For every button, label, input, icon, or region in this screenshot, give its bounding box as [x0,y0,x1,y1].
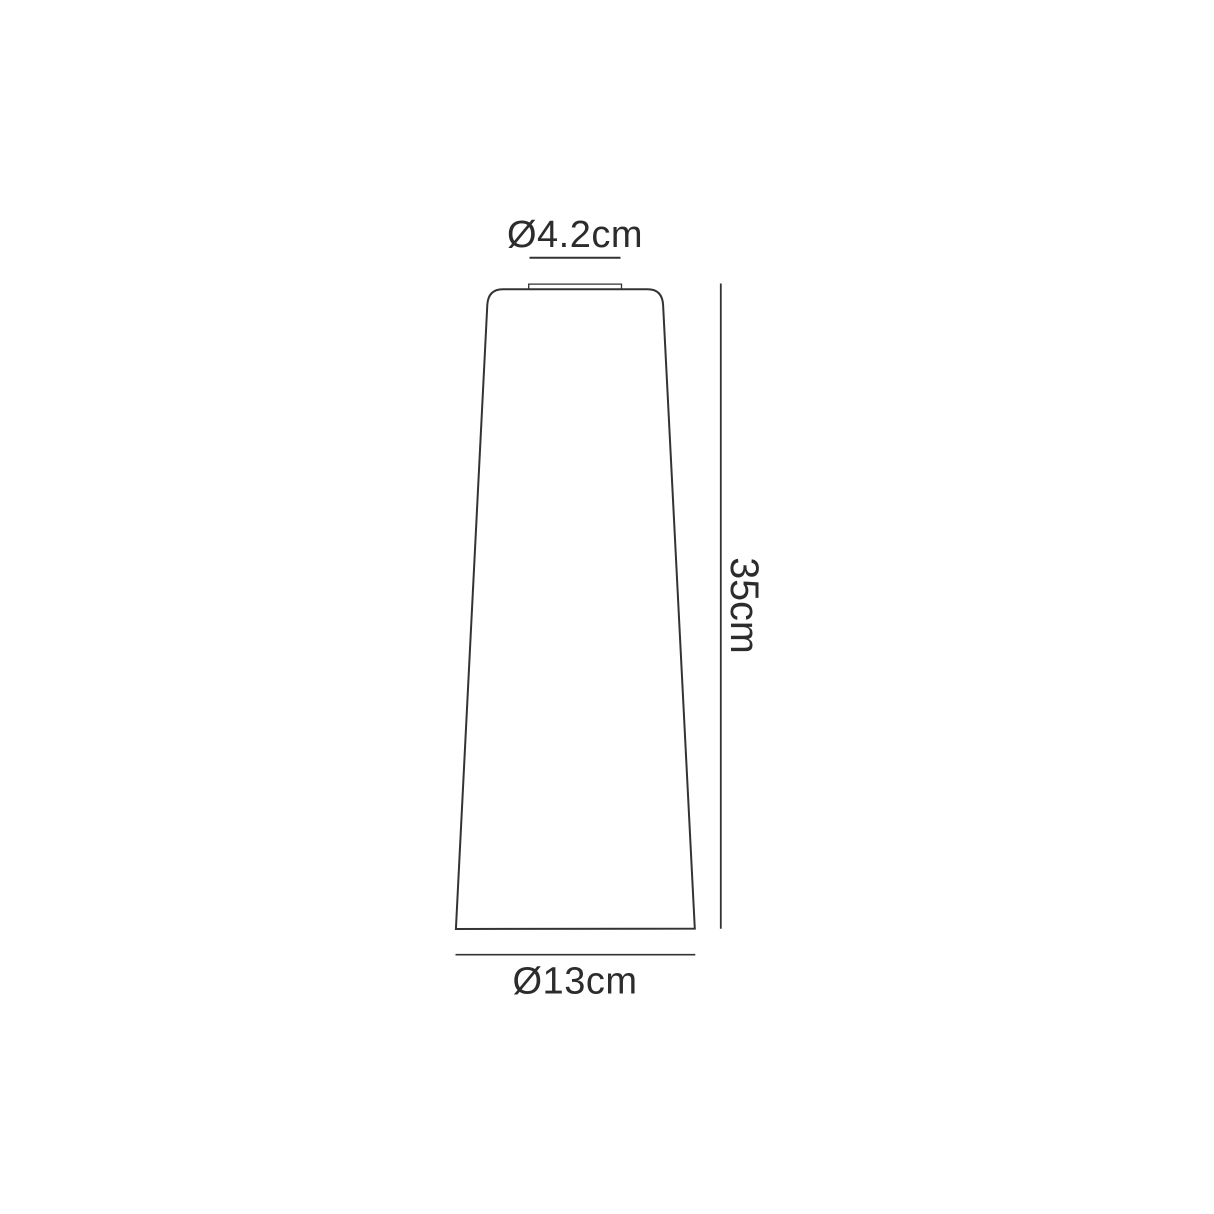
svg-text:35cm: 35cm [722,557,766,654]
svg-text:Ø4.2cm: Ø4.2cm [507,214,643,256]
svg-text:Ø13cm: Ø13cm [513,961,638,1003]
